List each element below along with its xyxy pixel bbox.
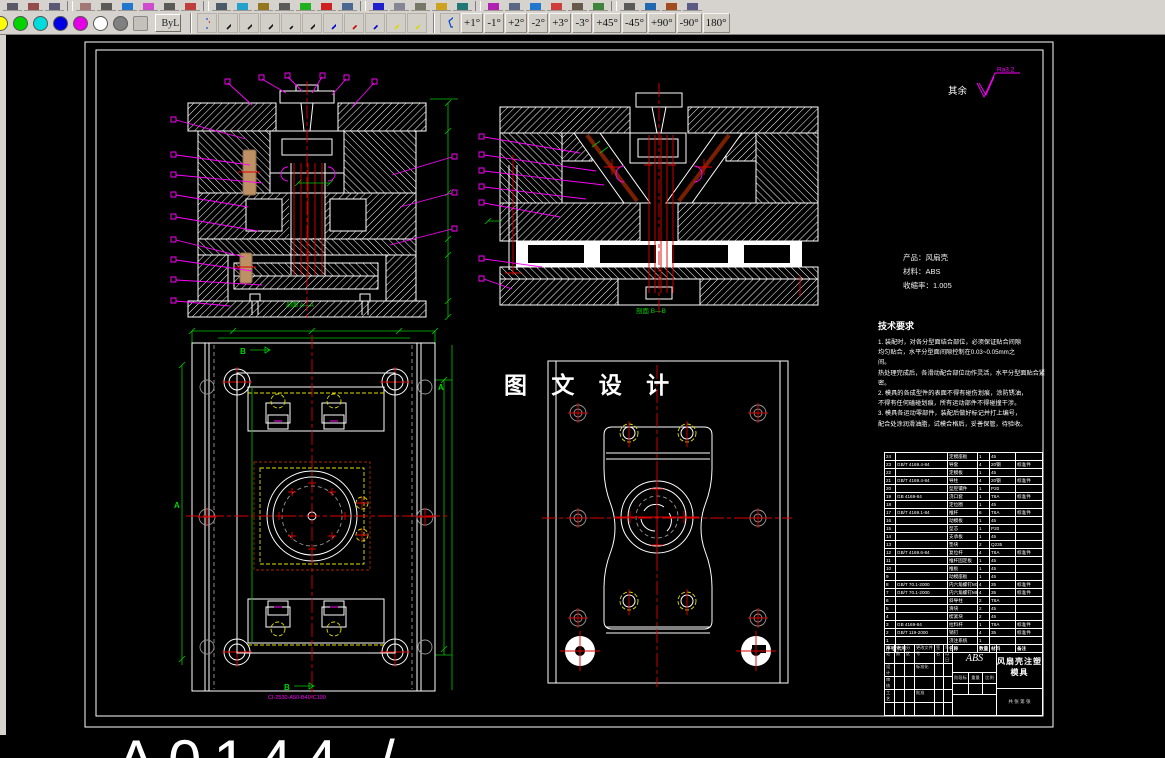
rotate-angle-group: +1°-1°+2°-2°+3°-3°+45°-45°+90°-90°180° — [461, 13, 731, 33]
product-info-line: 收缩率：1.005 — [903, 279, 952, 293]
toolbar-row-1 — [0, 0, 1165, 11]
rotate-plus3-button[interactable]: +3° — [549, 13, 571, 33]
product-info-line: 材料：ABS — [903, 265, 952, 279]
bom-row: 18定位圈145 — [885, 501, 1042, 509]
toolbar-icon-partial[interactable] — [233, 1, 252, 11]
marker-b-top: B — [240, 347, 246, 356]
line-width-tool-icon[interactable] — [197, 13, 217, 33]
toolbar-icon-partial[interactable] — [547, 1, 566, 11]
dashed2-black-icon[interactable] — [281, 13, 301, 33]
color-swatch-dark-gray[interactable] — [113, 16, 128, 31]
toolbar-icon-partial[interactable] — [76, 1, 95, 11]
bom-row: 5滑块245 — [885, 605, 1042, 613]
toolbar-separator — [611, 1, 617, 11]
scale-label: 比例 — [983, 673, 996, 683]
product-info: 产品：风扇壳材料：ABS收缩率：1.005 — [903, 251, 952, 293]
section-view-a: 剖面 A—A — [171, 73, 458, 320]
tech-req-line: 均匀贴合，水平分型面间隙控制在0.03~0.05mm之 — [878, 348, 1050, 358]
rotate--90-button[interactable]: -90° — [677, 13, 702, 33]
tech-req-line: 配合处涂润滑油脂，试模合格后，妥善保管，待验收。 — [878, 420, 1050, 430]
toolbar-separator — [203, 1, 209, 11]
toolbar-icon-partial[interactable] — [254, 1, 273, 11]
bom-row: 10推板145 — [885, 565, 1042, 573]
toolbar-icon-partial[interactable] — [338, 1, 357, 11]
color-swatch-magenta[interactable] — [73, 16, 88, 31]
toolbar-icon-partial[interactable] — [212, 1, 231, 11]
center-title: 图 文 设 计 — [504, 372, 678, 398]
title-block-middle: ABS 阶段标记 重量 比例 — [953, 645, 997, 715]
color-palette — [0, 16, 151, 31]
dashed-blue-icon[interactable] — [365, 13, 385, 33]
toolbar-icon-partial[interactable] — [641, 1, 660, 11]
tech-req-line: 不得有任何磕碰划痕，所有运动部件不得碰撞干涉。 — [878, 399, 1050, 409]
tech-req-line: 2. 模具的各成型件的表面不得有碰伤划痕，涂防锈油， — [878, 389, 1050, 399]
toolbar-icon-partial[interactable] — [526, 1, 545, 11]
color-swatch-blue[interactable] — [53, 16, 68, 31]
bom-row: 8GB/T 70.1-2000内六角螺钉M10435标准件 — [885, 581, 1042, 589]
tech-req-line: 热处理完成后，各滑动配合部位动作灵活，水平分型面贴合紧 — [878, 369, 1050, 379]
sheet-count: 共 张 第 张 — [997, 689, 1042, 715]
rotate-plus45-button[interactable]: +45° — [593, 13, 621, 33]
toolbar-icon-partial[interactable] — [296, 1, 315, 11]
toolbar-icon-partial[interactable] — [432, 1, 451, 11]
bom-row: 19GB 4169-84浇口套1T8A标准件 — [885, 493, 1042, 501]
toolbar-icon-partial[interactable] — [3, 1, 22, 11]
color-swatch-cyan[interactable] — [33, 16, 48, 31]
tech-req-line: 密。 — [878, 379, 1050, 389]
marker-a-right: A — [438, 383, 444, 392]
rotate-plus90-button[interactable]: +90° — [648, 13, 676, 33]
bom-row: 21GB/T 4169.4-84导柱420钢标准件 — [885, 477, 1042, 485]
bom-row: 11推杆固定板145 — [885, 557, 1042, 565]
rotate-shape-icon[interactable] — [440, 13, 460, 33]
surface-roughness-note: 其余 Ra3.2 — [948, 67, 1020, 98]
weight-label: 重量 — [969, 673, 983, 683]
technical-requirements-title: 技术要求 — [878, 319, 1050, 332]
rotate--2-button[interactable]: -2° — [528, 13, 548, 33]
title-block-revision-grid: 标记处数分区更改文件号签名年月日设计标准化审核工艺批准 — [885, 645, 953, 715]
tech-req-line: 1. 装配时，对各分型面结合部位，必须保证贴合间隙 — [878, 338, 1050, 348]
toolbar-separator — [67, 1, 73, 11]
tech-req-line: 间。 — [878, 358, 1050, 368]
bom-row: 6斜导柱2T8A — [885, 597, 1042, 605]
toolbar-separator — [360, 1, 366, 11]
toolbar-icon-partial[interactable] — [317, 1, 336, 11]
toolbar-icon-partial[interactable] — [589, 1, 608, 11]
section-b-caption: 剖面 B—B — [636, 306, 666, 315]
dashdot-black-icon[interactable] — [260, 13, 280, 33]
toolbar-icon-partial[interactable] — [411, 1, 430, 11]
plan-view-product — [542, 361, 792, 687]
color-swatch-yellow[interactable] — [0, 16, 8, 31]
toolbar-icon-partial[interactable] — [160, 1, 179, 11]
bom-row: 15型芯1P20 — [885, 525, 1042, 533]
bottom-partial-text: A0144 / — [116, 728, 407, 758]
toolbar-separator — [190, 13, 192, 33]
title-block: 标记处数分区更改文件号签名年月日设计标准化审核工艺批准 ABS 阶段标记 重量 … — [884, 644, 1043, 716]
section-a-caption: 剖面 A—A — [286, 301, 314, 309]
toolbar-icon-partial[interactable] — [484, 1, 503, 11]
rotate-plus2-button[interactable]: +2° — [505, 13, 527, 33]
toolbar-icon-partial[interactable] — [181, 1, 200, 11]
section-view-b: 剖面 B—B — [479, 83, 818, 315]
rotate--3-button[interactable]: -3° — [572, 13, 592, 33]
bom-row: 17GB/T 4169.1-84推杆6T8A标准件 — [885, 509, 1042, 517]
rotate--1-button[interactable]: -1° — [484, 13, 504, 33]
tech-req-line: 3. 模具各运动零部件，装配后做好标记并打上编号， — [878, 409, 1050, 419]
toolbar-row-2: ByL +1°-1°+2°-2°+3°-3°+45°-45°+90°-90°18… — [0, 11, 1165, 35]
product-info-line: 产品：风扇壳 — [903, 251, 952, 265]
bom-row: 3GB 4169-84拉料杆1T8A标准件 — [885, 621, 1042, 629]
toolbar-icon-partial[interactable] — [24, 1, 43, 11]
toolbar-icon-partial[interactable] — [683, 1, 702, 11]
bom-row: 24定模座板145 — [885, 453, 1042, 461]
svg-text:其余: 其余 — [948, 85, 968, 97]
color-swatch-green[interactable] — [13, 16, 28, 31]
toolbar-icon-partial[interactable] — [505, 1, 524, 11]
toolbar-icon-partial[interactable] — [118, 1, 137, 11]
material-label: ABS — [953, 645, 996, 673]
toolbar-icon-partial[interactable] — [139, 1, 158, 11]
toolbar-icon-partial[interactable] — [45, 1, 64, 11]
toolbar-icon-partial[interactable] — [453, 1, 472, 11]
toolbar-separator — [475, 1, 481, 11]
bom-row: 9动模座板145 — [885, 573, 1042, 581]
bom-row: 2GB/T 119-2000销钉435标准件 — [885, 629, 1042, 637]
bom-row: 7GB/T 70.1-2000内六角螺钉M8435标准件 — [885, 589, 1042, 597]
drawing-name: 风扇壳注塑模具 — [997, 645, 1042, 689]
moldbase-code: CI-2530-A50-B40-C100 — [268, 695, 326, 701]
dashed-black-icon[interactable] — [239, 13, 259, 33]
dashed-red-icon[interactable] — [344, 13, 364, 33]
color-swatch-light-gray[interactable] — [133, 16, 148, 31]
toolbar-icon-partial[interactable] — [369, 1, 388, 11]
toolbar-icon-partial[interactable] — [662, 1, 681, 11]
toolbar-icon-partial[interactable] — [620, 1, 639, 11]
bom-row: 20型腔镶件1P20 — [885, 485, 1042, 493]
solid-black-icon[interactable] — [218, 13, 238, 33]
marker-a-left: A — [174, 501, 180, 510]
solid-yellow-icon[interactable] — [386, 13, 406, 33]
plan-view-mold-base: B B A A — [174, 328, 452, 701]
toolbar-icon-partial[interactable] — [390, 1, 409, 11]
technical-requirements: 技术要求 1. 装配时，对各分型面结合部位，必须保证贴合间隙均匀贴合，水平分型面… — [878, 319, 1050, 430]
dashed-yellow-icon[interactable] — [407, 13, 427, 33]
toolbar-icon-partial[interactable] — [97, 1, 116, 11]
bom-row: 16动模板145 — [885, 517, 1042, 525]
bom-row: 12GB/T 4169.6-84复位杆4T8A标准件 — [885, 549, 1042, 557]
solid-blue-icon[interactable] — [323, 13, 343, 33]
cad-application-window: ByL +1°-1°+2°-2°+3°-3°+45°-45°+90°-90°18… — [0, 0, 1165, 758]
bom-row: 22定模板145 — [885, 469, 1042, 477]
rotate--45-button[interactable]: -45° — [622, 13, 647, 33]
rotate-plus1-button[interactable]: +1° — [461, 13, 483, 33]
toolbar: ByL +1°-1°+2°-2°+3°-3°+45°-45°+90°-90°18… — [0, 0, 1165, 35]
bom-parts-list: 24定模座板14523GB/T 4169.4-84导套420钢标准件22定模板1… — [884, 452, 1043, 653]
toolbar-separator — [433, 13, 435, 33]
bom-row: 23GB/T 4169.4-84导套420钢标准件 — [885, 461, 1042, 469]
toolbar-icon-partial[interactable] — [275, 1, 294, 11]
toolbar-icon-partial[interactable] — [568, 1, 587, 11]
bylayer-color-button[interactable]: ByL — [155, 14, 181, 32]
rotate-180-button[interactable]: 180° — [703, 13, 730, 33]
svg-text:Ra3.2: Ra3.2 — [997, 67, 1015, 74]
stage-mark-label: 阶段标记 — [953, 673, 969, 683]
color-swatch-white[interactable] — [93, 16, 108, 31]
line-style-group — [197, 13, 428, 33]
drawing-canvas[interactable]: .w{stroke:#fff;fill:none;stroke-width:1}… — [0, 35, 1165, 758]
bom-row: 4楔紧块245 — [885, 613, 1042, 621]
bom-row: 14支承板145 — [885, 533, 1042, 541]
bom-row: 13垫块2Q235 — [885, 541, 1042, 549]
dashdotdot-black-icon[interactable] — [302, 13, 322, 33]
